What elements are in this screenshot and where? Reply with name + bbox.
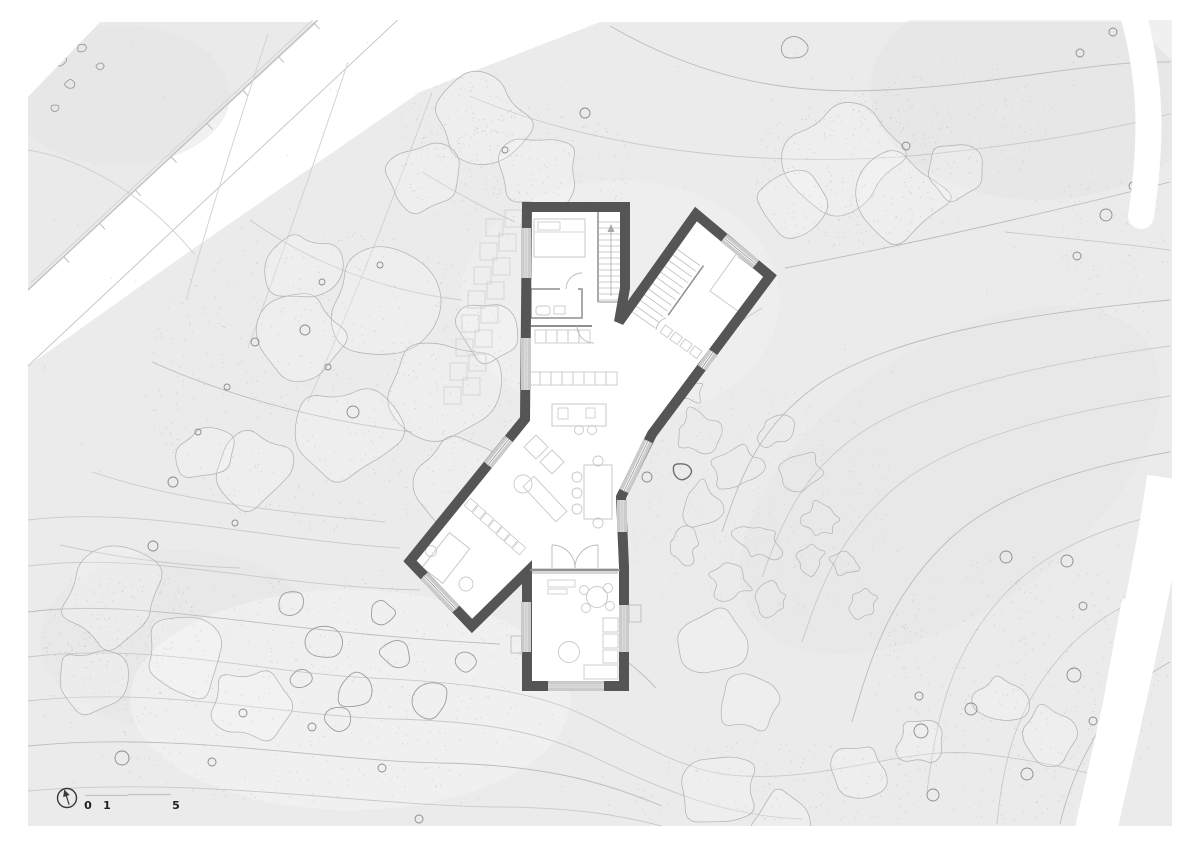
stipple-dot — [470, 92, 471, 93]
stipple-dot — [509, 401, 510, 402]
stipple-dot — [338, 609, 339, 610]
stipple-dot — [863, 527, 864, 528]
stipple-dot — [442, 415, 443, 416]
stipple-dot — [188, 299, 189, 300]
stipple-dot — [1139, 306, 1140, 307]
stipple-dot — [157, 613, 158, 614]
scatter-dot — [1023, 735, 1024, 736]
stipple-dot — [75, 625, 76, 626]
stipple-dot — [155, 715, 156, 716]
stipple-dot — [260, 403, 261, 404]
stipple-dot — [496, 742, 497, 743]
stipple-dot — [273, 770, 274, 771]
stipple-dot — [915, 618, 916, 619]
scatter-dot — [215, 297, 216, 298]
stipple-dot — [90, 625, 91, 626]
stipple-dot — [454, 202, 455, 203]
stipple-dot — [157, 585, 158, 586]
stipple-dot — [213, 270, 214, 271]
stipple-dot — [160, 753, 161, 754]
stipple-dot — [957, 167, 958, 168]
scatter-dot — [828, 171, 829, 172]
stipple-dot — [820, 197, 821, 198]
stipple-dot — [981, 816, 982, 817]
stipple-dot — [937, 156, 938, 157]
stipple-dot — [995, 110, 996, 111]
scatter-dot — [1073, 62, 1074, 63]
stipple-dot — [749, 425, 750, 426]
stipple-dot — [1078, 303, 1079, 304]
stipple-dot — [271, 406, 272, 407]
stipple-dot — [166, 428, 167, 429]
stipple-dot — [849, 537, 850, 538]
stipple-dot — [470, 176, 471, 177]
stipple-dot — [778, 136, 779, 137]
stipple-dot — [352, 680, 353, 681]
stipple-dot — [409, 342, 410, 343]
stipple-dot — [899, 170, 900, 171]
stipple-dot — [920, 197, 921, 198]
scatter-dot — [945, 737, 946, 738]
stipple-dot — [1082, 254, 1083, 255]
stipple-dot — [1001, 91, 1002, 92]
stipple-dot — [979, 695, 980, 696]
stipple-dot — [931, 210, 932, 211]
stipple-dot — [581, 175, 582, 176]
stipple-dot — [71, 646, 72, 647]
stipple-dot — [905, 775, 906, 776]
stipple-dot — [838, 237, 839, 238]
stipple-dot — [107, 668, 108, 669]
stipple-dot — [961, 667, 962, 668]
stipple-dot — [835, 106, 836, 107]
stipple-dot — [305, 420, 306, 421]
stipple-dot — [830, 180, 831, 181]
stipple-dot — [756, 548, 757, 549]
stipple-dot — [170, 648, 171, 649]
stipple-dot — [269, 592, 270, 593]
stipple-dot — [1003, 125, 1004, 126]
stipple-dot — [789, 750, 790, 751]
stipple-dot — [462, 200, 463, 201]
stipple-dot — [1067, 238, 1068, 239]
stipple-dot — [1042, 601, 1043, 602]
stipple-dot — [271, 583, 272, 584]
stipple-dot — [329, 729, 330, 730]
scatter-dot — [986, 290, 987, 291]
stipple-dot — [370, 725, 371, 726]
stipple-dot — [1018, 689, 1019, 690]
stipple-dot — [425, 507, 426, 508]
stipple-dot — [512, 165, 513, 166]
stipple-dot — [461, 136, 462, 137]
stipple-dot — [962, 147, 963, 148]
stipple-dot — [840, 819, 841, 820]
stipple-dot — [307, 514, 308, 515]
stipple-dot — [859, 493, 860, 494]
stipple-dot — [365, 454, 366, 455]
stipple-dot — [459, 644, 460, 645]
stipple-dot — [251, 793, 252, 794]
stipple-dot — [1134, 267, 1135, 268]
stipple-dot — [825, 119, 826, 120]
stipple-dot — [920, 636, 921, 637]
stipple-dot — [509, 97, 510, 98]
stipple-dot — [809, 108, 810, 109]
stipple-dot — [384, 642, 385, 643]
stipple-dot — [1025, 643, 1026, 644]
stipple-dot — [881, 121, 882, 122]
stipple-dot — [251, 377, 252, 378]
stipple-dot — [192, 790, 193, 791]
stipple-dot — [860, 484, 861, 485]
stipple-dot — [405, 126, 406, 127]
stipple-dot — [1048, 564, 1049, 565]
white-band-ne — [1133, 14, 1148, 216]
stipple-dot — [821, 529, 822, 530]
stipple-dot — [1018, 154, 1019, 155]
stipple-dot — [221, 354, 222, 355]
stipple-dot — [844, 213, 845, 214]
scatter-dot — [892, 372, 893, 373]
stipple-dot — [738, 445, 739, 446]
stipple-dot — [1065, 254, 1066, 255]
stipple-dot — [1058, 800, 1059, 801]
stipple-dot — [1050, 589, 1051, 590]
stipple-dot — [948, 108, 949, 109]
stipple-dot — [485, 178, 486, 179]
stipple-dot — [1148, 748, 1149, 749]
stipple-dot — [421, 188, 422, 189]
stipple-dot — [712, 603, 713, 604]
stipple-dot — [100, 601, 101, 602]
stipple-dot — [159, 575, 160, 576]
stipple-dot — [341, 768, 342, 769]
stipple-dot — [661, 537, 662, 538]
stipple-dot — [353, 461, 354, 462]
stipple-dot — [356, 432, 357, 433]
stipple-dot — [429, 393, 430, 394]
stipple-dot — [117, 639, 118, 640]
stipple-dot — [271, 651, 272, 652]
stipple-dot — [498, 194, 499, 195]
stipple-dot — [834, 547, 835, 548]
stipple-dot — [762, 188, 763, 189]
stipple-dot — [1017, 579, 1018, 580]
stipple-dot — [394, 286, 395, 287]
scatter-dot — [132, 45, 133, 46]
stipple-dot — [264, 371, 265, 372]
stipple-dot — [158, 605, 159, 606]
stipple-dot — [70, 722, 71, 723]
stipple-dot — [992, 150, 993, 151]
stipple-dot — [796, 780, 797, 781]
stipple-dot — [722, 754, 723, 755]
stipple-dot — [148, 636, 149, 637]
stipple-dot — [246, 371, 247, 372]
stipple-dot — [46, 714, 47, 715]
stipple-dot — [1074, 666, 1075, 667]
stipple-dot — [160, 333, 161, 334]
stipple-dot — [1029, 612, 1030, 613]
stipple-dot — [502, 687, 503, 688]
scatter-dot — [224, 675, 225, 676]
stipple-dot — [509, 690, 510, 691]
stipple-dot — [1046, 670, 1047, 671]
stipple-dot — [351, 516, 352, 517]
stipple-dot — [871, 705, 872, 706]
stipple-dot — [1013, 662, 1014, 663]
stipple-dot — [199, 378, 200, 379]
stipple-dot — [839, 244, 840, 245]
stipple-dot — [285, 404, 286, 405]
stipple-dot — [351, 733, 352, 734]
stipple-dot — [668, 803, 669, 804]
stipple-dot — [867, 783, 868, 784]
stipple-dot — [486, 80, 487, 81]
stipple-dot — [912, 600, 913, 601]
stipple-dot — [548, 109, 549, 110]
stipple-dot — [288, 364, 289, 365]
stipple-dot — [437, 134, 438, 135]
stipple-dot — [207, 353, 208, 354]
stipple-dot — [297, 422, 298, 423]
stipple-dot — [996, 91, 997, 92]
stipple-dot — [295, 318, 296, 319]
stipple-dot — [755, 461, 756, 462]
stipple-dot — [299, 779, 300, 780]
stipple-dot — [859, 524, 860, 525]
stipple-dot — [861, 186, 862, 187]
stipple-dot — [94, 693, 95, 694]
stipple-dot — [430, 731, 431, 732]
stipple-dot — [59, 633, 60, 634]
stipple-dot — [552, 714, 553, 715]
stipple-dot — [930, 218, 931, 219]
stipple-dot — [403, 361, 404, 362]
stipple-dot — [164, 748, 165, 749]
stipple-dot — [99, 618, 100, 619]
stipple-dot — [753, 490, 754, 491]
stipple-dot — [878, 139, 879, 140]
stipple-dot — [905, 624, 906, 625]
stipple-dot — [859, 110, 860, 111]
road-tick — [278, 57, 284, 63]
stipple-dot — [1031, 129, 1032, 130]
stipple-dot — [886, 233, 887, 234]
stipple-dot — [1123, 596, 1124, 597]
stipple-dot — [546, 192, 547, 193]
stipple-dot — [278, 745, 279, 746]
stipple-dot — [828, 493, 829, 494]
stipple-dot — [479, 119, 480, 120]
stipple-dot — [924, 134, 925, 135]
stipple-dot — [431, 131, 432, 132]
stipple-dot — [853, 212, 854, 213]
stipple-dot — [853, 135, 854, 136]
stipple-dot — [521, 156, 522, 157]
stipple-dot — [797, 192, 798, 193]
stipple-dot — [193, 625, 194, 626]
stipple-dot — [302, 506, 303, 507]
stipple-dot — [804, 228, 805, 229]
stipple-dot — [471, 90, 472, 91]
stipple-dot — [450, 140, 451, 141]
stipple-dot — [119, 582, 120, 583]
stipple-dot — [217, 314, 218, 315]
stipple-dot — [1075, 202, 1076, 203]
stipple-dot — [442, 433, 443, 434]
stipple-dot — [1058, 562, 1059, 563]
stipple-dot — [252, 721, 253, 722]
stipple-dot — [858, 111, 859, 112]
stipple-dot — [329, 781, 330, 782]
stipple-dot — [918, 609, 919, 610]
stipple-dot — [1087, 194, 1088, 195]
stipple-dot — [804, 434, 805, 435]
stipple-dot — [444, 746, 445, 747]
stipple-dot — [423, 137, 424, 138]
stipple-dot — [771, 806, 772, 807]
stipple-dot — [925, 144, 926, 145]
stipple-dot — [1019, 581, 1020, 582]
stipple-dot — [707, 750, 708, 751]
stipple-dot — [355, 518, 356, 519]
stipple-dot — [263, 676, 264, 677]
stipple-dot — [765, 763, 766, 764]
stipple-dot — [991, 146, 992, 147]
stipple-dot — [323, 736, 324, 737]
stipple-dot — [829, 117, 830, 118]
stipple-dot — [800, 767, 801, 768]
stipple-dot — [1018, 755, 1019, 756]
stipple-dot — [896, 154, 897, 155]
stipple-dot — [127, 655, 128, 656]
stipple-dot — [899, 115, 900, 116]
stipple-dot — [139, 623, 140, 624]
stipple-dot — [661, 475, 662, 476]
stipple-dot — [439, 767, 440, 768]
stipple-dot — [398, 373, 399, 374]
stipple-dot — [902, 129, 903, 130]
stipple-dot — [704, 557, 705, 558]
stipple-dot — [440, 785, 441, 786]
stipple-dot — [388, 674, 389, 675]
stipple-dot — [759, 203, 760, 204]
stipple-dot — [1046, 718, 1047, 719]
stipple-dot — [431, 407, 432, 408]
stipple-dot — [579, 180, 580, 181]
stipple-dot — [217, 263, 218, 264]
stipple-dot — [855, 87, 856, 88]
stipple-dot — [457, 697, 458, 698]
stipple-dot — [1050, 748, 1051, 749]
stipple-dot — [910, 223, 911, 224]
stipple-dot — [380, 436, 381, 437]
stipple-dot — [394, 359, 395, 360]
stipple-dot — [885, 514, 886, 515]
stipple-dot — [895, 83, 896, 84]
stipple-dot — [269, 676, 270, 677]
stipple-dot — [452, 94, 453, 95]
stipple-dot — [805, 575, 806, 576]
stipple-dot — [860, 582, 861, 583]
stipple-dot — [800, 547, 801, 548]
stipple-dot — [381, 306, 382, 307]
stipple-dot — [482, 131, 483, 132]
stipple-dot — [511, 109, 512, 110]
stipple-dot — [913, 803, 914, 804]
stipple-dot — [1037, 125, 1038, 126]
stipple-dot — [447, 624, 448, 625]
stipple-dot — [767, 560, 768, 561]
stipple-dot — [778, 433, 779, 434]
scatter-dot — [608, 805, 609, 806]
stipple-dot — [898, 751, 899, 752]
stipple-dot — [86, 639, 87, 640]
stipple-dot — [889, 232, 890, 233]
stipple-dot — [189, 649, 190, 650]
stipple-dot — [511, 420, 512, 421]
stipple-dot — [967, 576, 968, 577]
scatter-dot — [510, 110, 511, 111]
stipple-dot — [503, 118, 504, 119]
stipple-dot — [509, 150, 510, 151]
stipple-dot — [1078, 747, 1079, 748]
stipple-dot — [789, 487, 790, 488]
stipple-dot — [895, 217, 896, 218]
stipple-dot — [802, 557, 803, 558]
stipple-dot — [405, 486, 406, 487]
stipple-dot — [55, 615, 56, 616]
stipple-dot — [500, 189, 501, 190]
stipple-dot — [787, 146, 788, 147]
stipple-dot — [878, 816, 879, 817]
stipple-dot — [1022, 685, 1023, 686]
stipple-dot — [910, 734, 911, 735]
stipple-dot — [793, 203, 794, 204]
stipple-dot — [237, 285, 238, 286]
stipple-dot — [172, 764, 173, 765]
stipple-dot — [443, 156, 444, 157]
stipple-dot — [166, 444, 167, 445]
stipple-dot — [1076, 213, 1077, 214]
stipple-dot — [954, 809, 955, 810]
stipple-dot — [477, 354, 478, 355]
stipple-dot — [448, 118, 449, 119]
stipple-dot — [910, 757, 911, 758]
stipple-dot — [311, 362, 312, 363]
stipple-dot — [940, 130, 941, 131]
stipple-dot — [393, 352, 394, 353]
stipple-dot — [355, 629, 356, 630]
stipple-dot — [916, 633, 917, 634]
stipple-dot — [727, 757, 728, 758]
stipple-dot — [445, 296, 446, 297]
stipple-dot — [415, 408, 416, 409]
stipple-dot — [410, 595, 411, 596]
stipple-dot — [467, 384, 468, 385]
stipple-dot — [205, 746, 206, 747]
stipple-dot — [678, 466, 679, 467]
stipple-dot — [173, 452, 174, 453]
stipple-dot — [361, 739, 362, 740]
margin-left — [0, 0, 28, 848]
stipple-dot — [1097, 575, 1098, 576]
tree-canopy — [682, 757, 755, 822]
stipple-dot — [814, 467, 815, 468]
stipple-dot — [433, 133, 434, 134]
